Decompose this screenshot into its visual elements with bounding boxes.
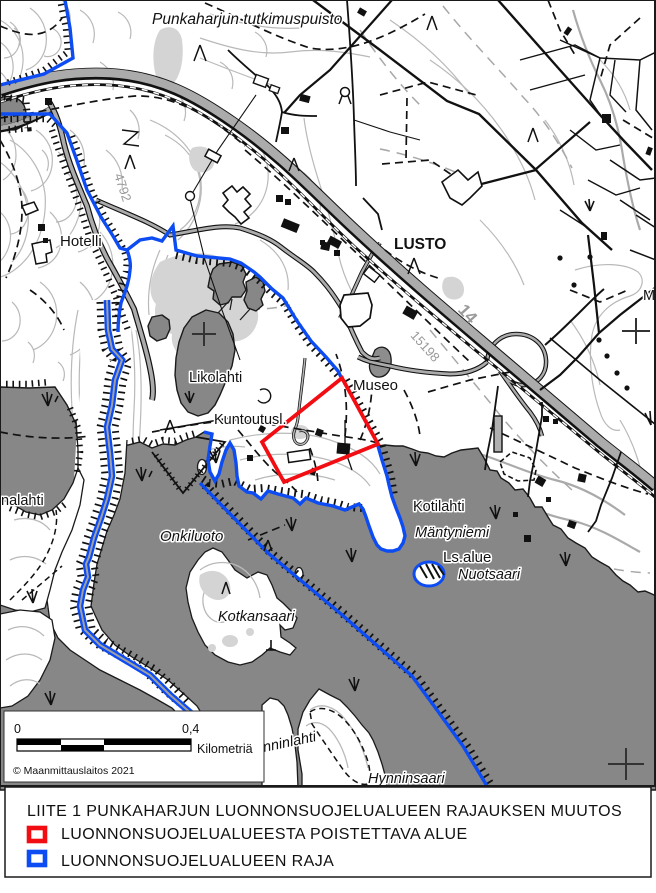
svg-text:Kuntoutusl.: Kuntoutusl. <box>214 412 287 428</box>
svg-text:0: 0 <box>14 722 21 736</box>
svg-text:Kilometriä: Kilometriä <box>197 742 253 756</box>
svg-text:Mäntyniemi: Mäntyniemi <box>415 525 490 541</box>
svg-text:Likolahti: Likolahti <box>189 370 242 386</box>
svg-text:0,4: 0,4 <box>182 722 199 736</box>
svg-text:LUONNONSUOJELUALUEEN RAJA: LUONNONSUOJELUALUEEN RAJA <box>61 853 334 870</box>
svg-text:Museo: Museo <box>353 377 398 394</box>
svg-text:Ls.alue: Ls.alue <box>443 549 491 566</box>
svg-text:Nuotsaari: Nuotsaari <box>458 567 521 583</box>
svg-text:Onkiluoto: Onkiluoto <box>160 528 223 545</box>
svg-text:Kotkansaari: Kotkansaari <box>218 609 295 625</box>
svg-text:LIITE 1 PUNKAHARJUN LUONNONSUO: LIITE 1 PUNKAHARJUN LUONNONSUOJELUALUEEN… <box>27 803 622 820</box>
svg-text:nalahti: nalahti <box>1 493 44 509</box>
svg-text:LUSTO: LUSTO <box>394 236 446 253</box>
svg-text:Hotelli: Hotelli <box>60 233 102 250</box>
svg-text:Hynninsaari: Hynninsaari <box>368 771 445 787</box>
svg-text:LUONNONSUOJELUALUEESTA POISTET: LUONNONSUOJELUALUEESTA POISTETTAVA ALUE <box>61 826 468 843</box>
svg-text:Kotilahti: Kotilahti <box>413 499 465 515</box>
svg-text:© Maanmittauslaitos 2021: © Maanmittauslaitos 2021 <box>13 765 135 777</box>
svg-text:M: M <box>643 288 655 304</box>
svg-text:Punkaharjun tutkimuspuisto: Punkaharjun tutkimuspuisto <box>152 11 343 28</box>
